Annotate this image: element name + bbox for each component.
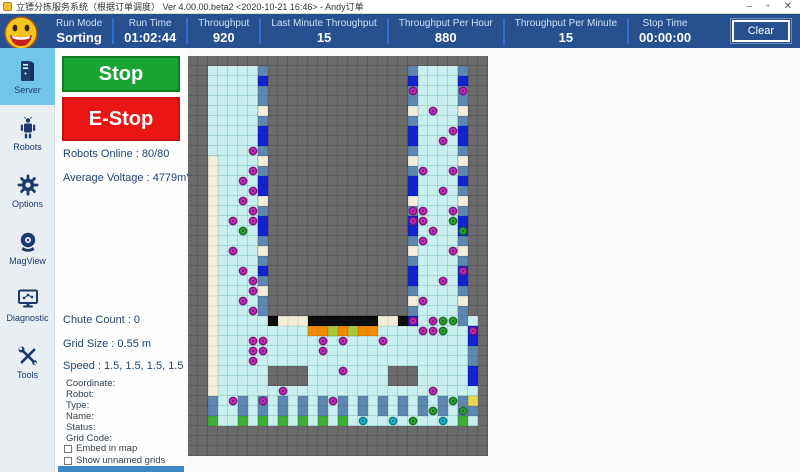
stat-run-mode: Run Mode Sorting	[46, 17, 112, 45]
stop-button[interactable]: Stop	[62, 56, 180, 92]
diagnostic-monitor-icon	[16, 287, 40, 311]
sidebar-item-robots[interactable]: Robots	[0, 105, 55, 162]
stat-stop-time: Stop Time 00:00:00	[629, 17, 701, 45]
webcam-icon	[16, 230, 40, 254]
average-voltage-text: Average Voltage : 4779mV	[63, 172, 194, 184]
title-bar: 立镖分拣服务系统（根据订单调度） Ver 4.00.00.beta2 <2020…	[0, 0, 800, 14]
chute-count-text: Chute Count : 0	[63, 314, 140, 326]
gear-icon	[16, 173, 40, 197]
stat-throughput-per-hour: Throughput Per Hour 880	[389, 17, 503, 45]
server-icon	[16, 59, 40, 83]
app-window: 立镖分拣服务系统（根据订单调度） Ver 4.00.00.beta2 <2020…	[0, 0, 800, 472]
header-bar: Run Mode Sorting Run Time 01:02:44 Throu…	[0, 14, 800, 48]
app-icon	[3, 2, 12, 11]
map-area	[188, 48, 800, 472]
sidebar-item-diagnostic[interactable]: Diagnostic	[0, 276, 55, 333]
tools-icon	[16, 344, 40, 368]
stat-run-time: Run Time 01:02:44	[114, 17, 186, 45]
sidebar-item-magview[interactable]: MagView	[0, 219, 55, 276]
robot-field-label: Robot:	[66, 389, 94, 400]
robots-online-text: Robots Online : 80/80	[63, 148, 169, 160]
checkbox-box[interactable]	[64, 457, 72, 465]
type-field-label: Type:	[66, 400, 89, 411]
clear-button[interactable]: Clear	[732, 20, 790, 42]
close-button[interactable]: ✕	[784, 2, 792, 12]
control-panel: Stop E-Stop Robots Online : 80/80 Averag…	[56, 48, 188, 472]
smiley-logo-icon	[2, 15, 40, 51]
robot-icon	[16, 116, 40, 140]
sidebar-item-options[interactable]: Options	[0, 162, 55, 219]
sidebar-item-server[interactable]: Server	[0, 48, 55, 105]
grid-size-text: Grid Size : 0.55 m	[63, 338, 151, 350]
speed-text: Speed : 1.5, 1.5, 1.5, 1.5	[63, 360, 183, 372]
checkbox-box[interactable]	[64, 445, 72, 453]
sidebar: Server Robots	[0, 48, 55, 472]
status-field-label: Status:	[66, 422, 96, 433]
coordinate-field-label: Coordinate:	[66, 378, 115, 389]
maximize-button[interactable]: ▫	[766, 2, 770, 12]
estop-button[interactable]: E-Stop	[62, 97, 180, 141]
panel-bottom-button[interactable]	[58, 466, 184, 472]
window-title: 立镖分拣服务系统（根据订单调度） Ver 4.00.00.beta2 <2020…	[16, 0, 747, 13]
minimize-button[interactable]: –	[747, 2, 753, 12]
stat-throughput-per-minute: Throughput Per Minute 15	[505, 17, 627, 45]
embed-in-map-checkbox[interactable]: Embed in map	[64, 443, 137, 454]
sidebar-item-tools[interactable]: Tools	[0, 333, 55, 390]
stat-throughput: Throughput 920	[188, 17, 259, 45]
name-field-label: Name:	[66, 411, 94, 422]
grid-map[interactable]	[188, 56, 488, 461]
stat-last-minute-throughput: Last Minute Throughput 15	[261, 17, 386, 45]
show-unnamed-grids-checkbox[interactable]: Show unnamed grids	[64, 455, 165, 466]
